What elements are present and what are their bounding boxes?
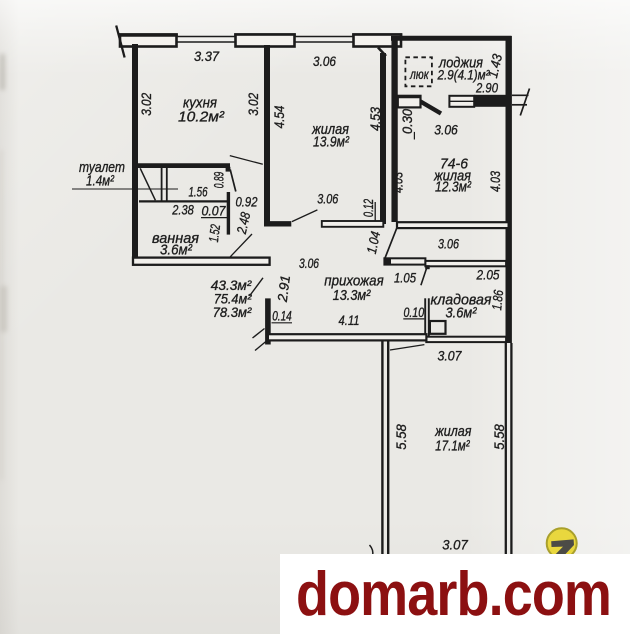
svg-text:3.06: 3.06 <box>434 123 458 138</box>
svg-text:4.54: 4.54 <box>272 106 287 129</box>
svg-text:5.58: 5.58 <box>394 424 409 450</box>
svg-text:0.12: 0.12 <box>361 199 376 218</box>
svg-text:3.6м²: 3.6м² <box>446 305 478 322</box>
svg-text:2.05: 2.05 <box>476 267 500 282</box>
svg-text:0.07: 0.07 <box>202 204 226 219</box>
svg-text:1.52: 1.52 <box>206 223 223 243</box>
svg-text:3.02: 3.02 <box>139 92 154 115</box>
svg-text:1.04: 1.04 <box>364 230 383 255</box>
svg-text:0.14: 0.14 <box>272 309 292 324</box>
svg-text:4.53: 4.53 <box>368 107 383 131</box>
svg-text:2.38: 2.38 <box>171 203 194 218</box>
svg-text:10.2м²: 10.2м² <box>178 109 225 126</box>
svg-text:3.07: 3.07 <box>442 538 468 553</box>
svg-text:5.58: 5.58 <box>492 424 507 450</box>
svg-text:3.07: 3.07 <box>438 349 462 364</box>
svg-text:1.86: 1.86 <box>489 289 506 311</box>
svg-text:1.56: 1.56 <box>189 185 208 200</box>
svg-text:люк: люк <box>409 67 429 82</box>
svg-text:2.90: 2.90 <box>475 81 498 96</box>
svg-text:0.10: 0.10 <box>403 305 424 320</box>
svg-text:78.3м²: 78.3м² <box>213 305 252 320</box>
svg-text:1.05: 1.05 <box>394 270 416 285</box>
svg-text:4.03: 4.03 <box>391 172 406 193</box>
svg-text:17.1м²: 17.1м² <box>435 438 470 455</box>
svg-text:2.91: 2.91 <box>275 274 293 303</box>
svg-text:1.4м²: 1.4м² <box>86 173 115 190</box>
svg-text:0.30: 0.30 <box>400 109 415 134</box>
svg-text:3.37: 3.37 <box>194 49 219 64</box>
svg-text:1.43: 1.43 <box>485 52 505 79</box>
svg-text:13.9м²: 13.9м² <box>313 134 350 151</box>
svg-text:4.03: 4.03 <box>488 171 503 192</box>
svg-text:13.3м²: 13.3м² <box>333 287 372 304</box>
svg-text:3.06: 3.06 <box>438 237 459 252</box>
svg-text:3.06: 3.06 <box>317 191 338 206</box>
svg-text:лоджия: лоджия <box>438 55 483 72</box>
svg-text:12.3м²: 12.3м² <box>435 179 472 196</box>
svg-text:0.92: 0.92 <box>236 195 258 210</box>
svg-text:3.02: 3.02 <box>246 92 261 115</box>
svg-text:2.48: 2.48 <box>234 210 254 236</box>
svg-text:3.06: 3.06 <box>299 256 319 271</box>
svg-text:3.6м²: 3.6м² <box>160 242 193 259</box>
svg-text:4.11: 4.11 <box>339 313 360 328</box>
svg-text:0.89: 0.89 <box>212 171 227 188</box>
svg-text:3.06: 3.06 <box>313 54 336 69</box>
